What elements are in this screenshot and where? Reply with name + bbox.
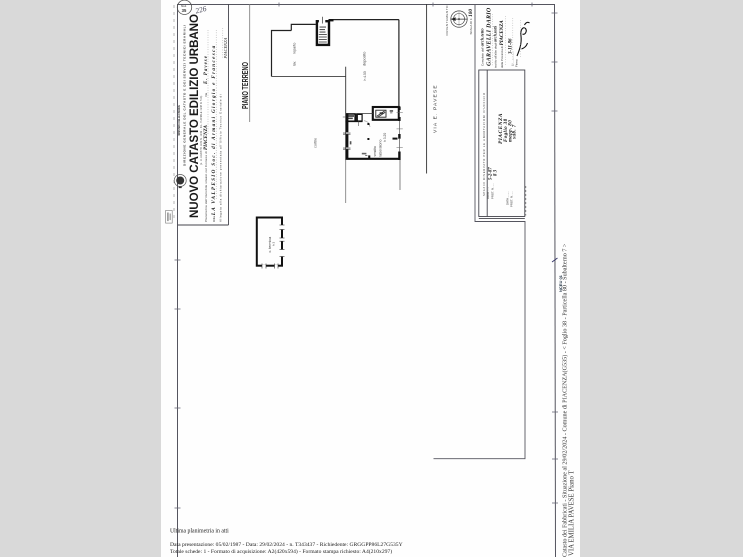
svg-text:(L. 11 AGOSTO 1939 N. 1249 - D: (L. 11 AGOSTO 1939 N. 1249 - D.L. 8 APRI… — [200, 95, 203, 165]
svg-text:PIANO TERRENO: PIANO TERRENO — [240, 62, 250, 109]
svg-text:ORIENTAMENTO: ORIENTAMENTO — [445, 5, 449, 36]
svg-text:reparto: reparto — [293, 43, 297, 54]
svg-text:lav.: lav. — [293, 61, 297, 66]
svg-text:Data presentazione: 05/02/1987: Data presentazione: 05/02/1987 - Data: 2… — [170, 542, 403, 548]
svg-text:DATA ......: DATA ...... — [486, 186, 490, 199]
svg-text:Totale schede: 1 - Formato di: Totale schede: 1 - Formato di acquisizio… — [170, 548, 392, 555]
svg-text:VIA E. PAVESE: VIA E. PAVESE — [433, 84, 439, 133]
svg-text:h 4.50: h 4.50 — [363, 71, 367, 80]
svg-text:Compilato dall' arch.tetto: Compilato dall' arch.tetto — [480, 28, 485, 66]
svg-text:vendita: vendita — [373, 146, 377, 157]
svg-text:VIA EMILIA PAVESE Piano T: VIA EMILIA PAVESE Piano T — [569, 470, 576, 556]
svg-text:sub. 7: sub. 7 — [513, 124, 518, 140]
svg-text:8 3: 8 3 — [494, 169, 499, 176]
svg-text:NUOVO CATASTO EDILIZIO URBANO: NUOVO CATASTO EDILIZIO URBANO — [188, 14, 201, 218]
svg-text:h 3.20: h 3.20 — [383, 133, 387, 142]
svg-text:35: 35 — [182, 8, 187, 13]
svg-text:PIACENZA: PIACENZA — [223, 37, 228, 59]
svg-text:Catasto dei Fabbricati - Situa: Catasto dei Fabbricati - Situazione al 2… — [562, 243, 569, 557]
svg-text:PROT. N. ....: PROT. N. .... — [491, 183, 495, 199]
svg-text:Ultima planimetria in atti: Ultima planimetria in atti — [170, 529, 229, 535]
svg-text:h 3: h 3 — [272, 241, 276, 246]
svg-text:laboratorio: laboratorio — [378, 140, 382, 157]
svg-text:Allegata alla dichiarazione pr: Allegata alla dichiarazione presentata a… — [219, 94, 223, 222]
svg-text:MINISTERO DELLE FINANZE: MINISTERO DELLE FINANZE — [177, 105, 181, 136]
svg-text:deposito: deposito — [362, 52, 366, 66]
svg-text:PROT. N. ....: PROT. N. .... — [510, 191, 514, 207]
svg-text:Firma: Firma — [515, 59, 519, 67]
svg-text:DIREZIONE GENERALE DEL CATASTO: DIREZIONE GENERALE DEL CATASTO E DEI SER… — [182, 25, 186, 166]
svg-text:iscritto all'albo degli arch.: iscritto all'albo degli arch.tetti — [493, 25, 498, 68]
svg-text:cortile: cortile — [314, 138, 318, 148]
svg-text:SPAZIO RISERVATO PER LE AN: SPAZIO RISERVATO PER LE ANNOTAZIONI D'UF… — [482, 93, 486, 196]
